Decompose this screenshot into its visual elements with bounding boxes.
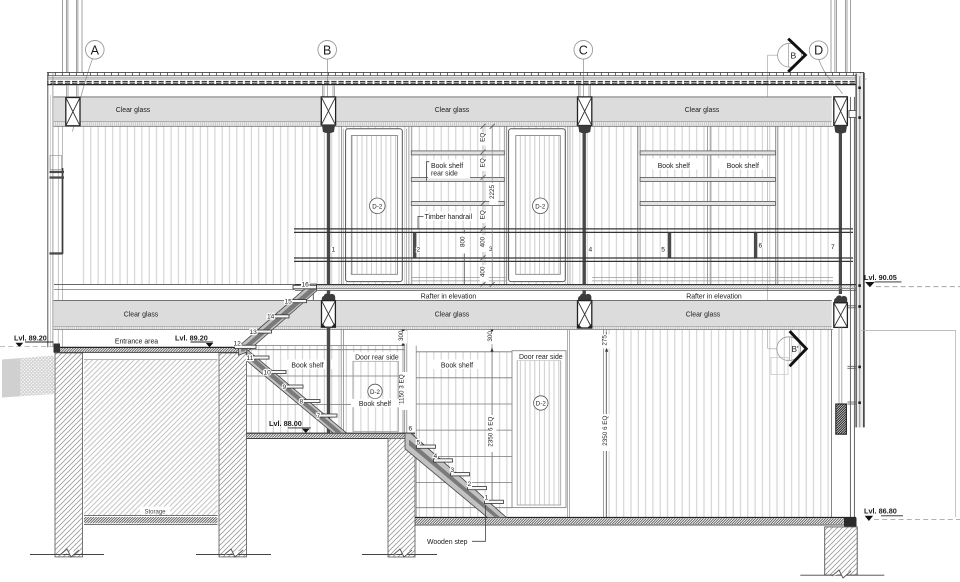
svg-text:Book shelf: Book shelf xyxy=(291,363,323,370)
svg-text:2: 2 xyxy=(417,247,421,254)
svg-text:14: 14 xyxy=(267,314,275,321)
svg-text:5: 5 xyxy=(661,247,665,254)
svg-text:300: 300 xyxy=(398,330,405,341)
svg-text:Door rear side: Door rear side xyxy=(355,355,399,362)
svg-text:C: C xyxy=(579,43,588,57)
svg-text:Clear glass: Clear glass xyxy=(124,312,159,319)
svg-text:D: D xyxy=(814,44,823,58)
svg-text:800: 800 xyxy=(460,236,467,247)
svg-text:B: B xyxy=(791,51,797,61)
svg-text:Door rear side: Door rear side xyxy=(519,354,563,361)
svg-text:Book shelf: Book shelf xyxy=(359,401,391,408)
svg-text:11: 11 xyxy=(247,355,254,362)
svg-text:Lvl. 89.20: Lvl. 89.20 xyxy=(14,333,47,342)
svg-text:Lvl. 89.20: Lvl. 89.20 xyxy=(175,333,208,342)
svg-text:12: 12 xyxy=(234,341,242,348)
svg-text:275: 275 xyxy=(602,335,609,346)
svg-text:16: 16 xyxy=(302,282,310,289)
svg-text:9: 9 xyxy=(283,384,287,391)
svg-text:6: 6 xyxy=(409,426,413,433)
svg-text:D-2: D-2 xyxy=(370,389,381,396)
svg-text:D-2: D-2 xyxy=(536,401,547,408)
svg-text:4: 4 xyxy=(589,247,593,254)
svg-text:rear side: rear side xyxy=(431,171,458,178)
svg-text:7: 7 xyxy=(831,244,835,251)
svg-text:Clear glass: Clear glass xyxy=(435,312,470,319)
svg-text:Lvl. 90.05: Lvl. 90.05 xyxy=(864,273,897,282)
svg-text:15: 15 xyxy=(285,298,293,305)
svg-text:8: 8 xyxy=(300,398,304,405)
svg-text:400: 400 xyxy=(479,236,486,247)
svg-text:Timber handrail: Timber handrail xyxy=(425,214,473,221)
svg-text:Lvl. 86.80: Lvl. 86.80 xyxy=(864,507,897,516)
svg-text:3: 3 xyxy=(451,467,455,474)
svg-text:6: 6 xyxy=(759,243,763,250)
svg-text:Rafter in elevation: Rafter in elevation xyxy=(686,293,742,300)
svg-text:Book shelf: Book shelf xyxy=(727,163,759,170)
svg-text:D-2: D-2 xyxy=(372,203,383,210)
svg-text:2350 6 EQ: 2350 6 EQ xyxy=(602,416,609,446)
svg-text:EQ: EQ xyxy=(479,133,486,142)
svg-text:Book shelf: Book shelf xyxy=(441,363,473,370)
svg-text:Lvl. 88.00: Lvl. 88.00 xyxy=(269,419,302,428)
svg-text:Clear glass: Clear glass xyxy=(685,107,720,114)
svg-text:300: 300 xyxy=(487,331,494,342)
svg-text:Clear glass: Clear glass xyxy=(686,312,721,319)
svg-text:EQ: EQ xyxy=(479,158,486,167)
svg-text:10: 10 xyxy=(264,369,272,376)
svg-text:4: 4 xyxy=(434,453,438,460)
svg-text:2: 2 xyxy=(468,481,472,488)
svg-text:1150 3 EQ: 1150 3 EQ xyxy=(399,374,406,404)
svg-text:1: 1 xyxy=(332,247,336,254)
svg-text:400: 400 xyxy=(479,266,486,277)
svg-text:1: 1 xyxy=(485,495,489,502)
svg-text:B: B xyxy=(323,43,331,57)
svg-text:Entrance area: Entrance area xyxy=(115,339,158,346)
svg-text:D-2: D-2 xyxy=(535,203,546,210)
svg-text:Book shelf: Book shelf xyxy=(431,163,463,170)
svg-text:5: 5 xyxy=(417,439,421,446)
svg-text:13: 13 xyxy=(250,329,258,336)
svg-text:Book shelf: Book shelf xyxy=(658,163,690,170)
svg-text:Clear glass: Clear glass xyxy=(435,107,470,114)
svg-text:7: 7 xyxy=(317,413,321,420)
svg-text:EQ: EQ xyxy=(479,210,486,219)
svg-text:A: A xyxy=(91,43,100,57)
svg-text:Clear glass: Clear glass xyxy=(116,107,151,114)
svg-text:Wooden step: Wooden step xyxy=(427,539,468,546)
svg-text:Rafter in elevation: Rafter in elevation xyxy=(421,293,477,300)
svg-text:2350 6 EQ: 2350 6 EQ xyxy=(488,417,495,447)
svg-text:B': B' xyxy=(792,345,799,354)
svg-text:2225: 2225 xyxy=(489,185,496,200)
svg-text:Storage: Storage xyxy=(144,510,166,516)
